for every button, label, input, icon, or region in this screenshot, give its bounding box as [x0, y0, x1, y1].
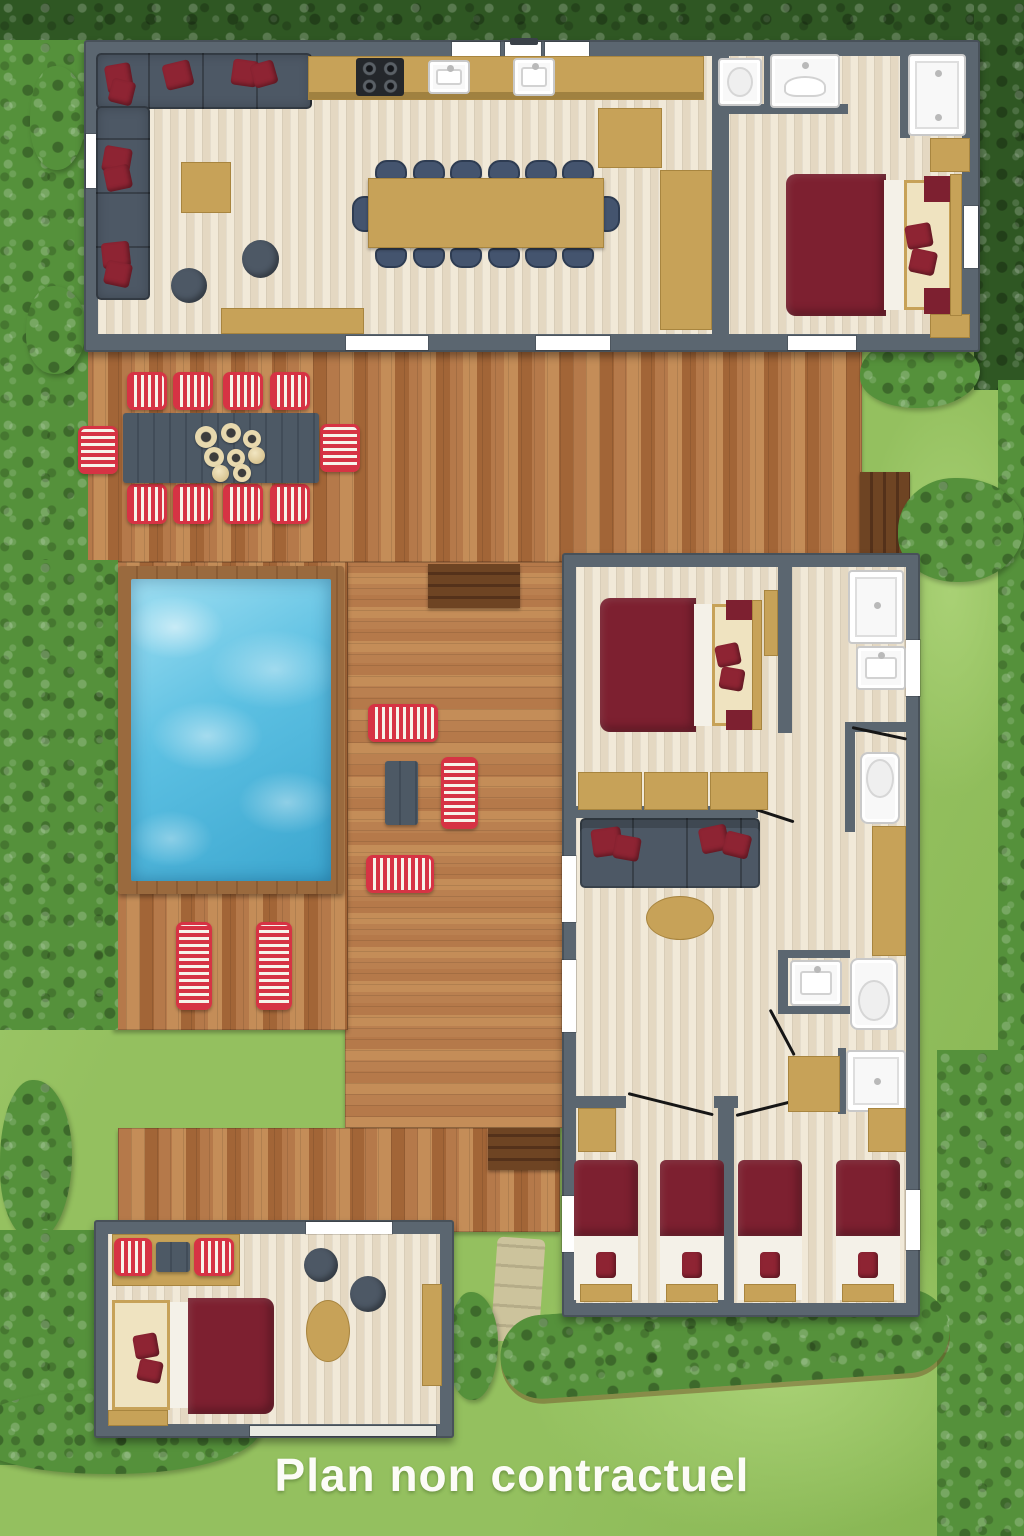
bed-bench — [108, 1410, 168, 1426]
single-bed-duvet — [836, 1160, 900, 1236]
outdoor-chair — [173, 372, 213, 410]
sink-basin — [865, 657, 896, 679]
dining-chair — [450, 160, 482, 180]
double-bed-sheet — [694, 604, 714, 726]
table-bowl — [212, 465, 229, 482]
lounge-bench — [441, 757, 478, 829]
dining-table — [368, 178, 604, 248]
kitchen-sink — [428, 60, 470, 94]
oval-rug — [646, 896, 714, 940]
wardrobe — [868, 1108, 906, 1152]
pouf — [242, 240, 279, 278]
outdoor-chair — [320, 424, 360, 472]
table-bowl — [221, 423, 241, 443]
hedge-right-mid — [998, 380, 1024, 1070]
partition — [778, 950, 850, 958]
outdoor-chair — [270, 372, 310, 410]
lounge-bench — [368, 704, 438, 742]
shower-drain — [874, 602, 881, 609]
shower-drain — [935, 114, 942, 121]
outdoor-chair — [270, 484, 310, 524]
kitchen-island — [598, 108, 662, 168]
table-bowl — [233, 464, 251, 482]
window — [906, 640, 920, 696]
dining-chair — [375, 160, 407, 180]
dining-chair — [562, 160, 594, 180]
headboard — [752, 600, 762, 730]
wardrobe — [872, 826, 906, 956]
bed-pillow — [904, 222, 934, 250]
lounge-bench — [366, 855, 434, 893]
partition — [714, 1096, 738, 1108]
table-bowl — [243, 430, 261, 448]
headboard — [950, 174, 962, 316]
bed-pillow — [858, 1252, 878, 1278]
partition — [576, 1096, 626, 1108]
partition — [778, 958, 788, 1008]
dining-chair — [562, 248, 594, 268]
pouf — [350, 1276, 386, 1312]
deck-steps — [428, 564, 520, 608]
sink-basin — [800, 971, 833, 995]
tall-cabinet — [660, 170, 712, 330]
toilet-seat — [866, 759, 893, 798]
oval-rug — [306, 1300, 350, 1362]
bathroom-cabinet — [788, 1056, 840, 1112]
dining-chair — [413, 248, 445, 268]
table-bowl — [195, 426, 217, 448]
wardrobe — [764, 590, 778, 656]
shower — [848, 570, 904, 644]
window — [545, 42, 589, 56]
double-bed-sheet — [170, 1302, 188, 1408]
outdoor-chair — [223, 372, 263, 410]
swimming-pool — [131, 579, 331, 881]
vanity-sink — [856, 646, 906, 690]
toilet-seat — [727, 67, 753, 97]
outdoor-chair — [223, 484, 263, 524]
wardrobe — [578, 1108, 616, 1152]
bed-pillow — [132, 1332, 160, 1360]
partition — [845, 732, 855, 832]
floor-plan-canvas: Plan non contractuel — [0, 0, 1024, 1536]
lounge-table — [385, 761, 418, 825]
shower — [846, 1050, 906, 1112]
bed-pillow — [596, 1252, 616, 1278]
bed-bench — [842, 1284, 894, 1302]
dining-chair — [488, 248, 520, 268]
single-bed-duvet — [738, 1160, 802, 1236]
lounge-deck — [345, 562, 563, 1128]
window — [562, 1196, 574, 1252]
window — [306, 1222, 392, 1234]
cabinet — [422, 1284, 442, 1386]
dining-chair — [525, 248, 557, 268]
window — [562, 960, 576, 1032]
sofa-pillow — [103, 260, 133, 289]
pouf — [304, 1248, 338, 1282]
shower — [908, 54, 966, 136]
bed-pillow — [908, 248, 938, 277]
deck-steps-lower — [488, 1128, 560, 1170]
toilet — [860, 752, 900, 824]
double-bed-sheet — [884, 180, 906, 310]
window — [346, 336, 428, 350]
table-bowl — [204, 447, 224, 467]
window — [452, 42, 500, 56]
armchair — [194, 1238, 234, 1276]
dining-chair — [375, 248, 407, 268]
hedge-right-upper — [974, 0, 1024, 390]
sink-basin — [784, 76, 826, 97]
window — [788, 336, 856, 350]
glazed-door — [250, 1426, 436, 1436]
bed-pillow — [682, 1252, 702, 1278]
bush-suite-right — [448, 1292, 498, 1400]
dresser — [644, 772, 708, 810]
shower-drain — [874, 1078, 881, 1085]
square-rug — [181, 162, 231, 213]
cooktop — [356, 58, 404, 96]
window — [964, 206, 978, 268]
bedroom-bench — [930, 138, 970, 172]
faucet — [447, 65, 454, 72]
kitchen-sink-2 — [513, 58, 555, 96]
dining-chair — [525, 160, 557, 180]
table-bowl — [248, 447, 265, 464]
outdoor-chair — [78, 426, 118, 474]
faucet — [814, 966, 821, 973]
single-bed-duvet — [574, 1160, 638, 1236]
outdoor-chair — [127, 484, 167, 524]
hedge-left-pool — [0, 560, 118, 1030]
dining-chair — [488, 160, 520, 180]
sofa-pillow — [612, 834, 642, 862]
bed-bench — [666, 1284, 718, 1302]
plan-caption: Plan non contractuel — [0, 1448, 1024, 1502]
sideboard — [221, 308, 364, 334]
bed-bench — [580, 1284, 632, 1302]
dresser — [578, 772, 642, 810]
partition — [778, 1006, 850, 1014]
side-table — [156, 1242, 190, 1272]
faucet — [802, 62, 809, 69]
sun-lounger — [256, 922, 292, 1010]
window — [536, 336, 610, 350]
window — [562, 856, 576, 922]
double-bed-duvet — [188, 1298, 274, 1414]
double-bed-duvet — [600, 598, 696, 732]
bush-left-low — [0, 1080, 72, 1240]
vanity-sink — [790, 960, 842, 1006]
bed-pillow — [760, 1252, 780, 1278]
window — [906, 1190, 920, 1250]
single-bed-duvet — [660, 1160, 724, 1236]
faucet — [532, 63, 539, 70]
toilet-seat — [858, 980, 890, 1021]
outdoor-chair — [173, 484, 213, 524]
faucet — [878, 652, 885, 659]
shower-drain — [935, 70, 942, 77]
bedroom-bench — [930, 314, 970, 338]
dining-chair — [450, 248, 482, 268]
toilet — [718, 58, 762, 106]
dining-chair — [413, 160, 445, 180]
pouf — [171, 268, 207, 303]
vanity-sink — [770, 54, 840, 108]
double-bed-duvet — [786, 174, 886, 316]
sink-basin — [521, 67, 547, 86]
sun-lounger — [176, 922, 212, 1010]
dresser — [710, 772, 768, 810]
toilet — [850, 958, 898, 1030]
bed-pillow — [136, 1358, 164, 1385]
window-fitting — [510, 38, 538, 45]
outdoor-chair — [127, 372, 167, 410]
partition — [778, 567, 792, 733]
bed-pillow — [718, 666, 745, 692]
armchair — [114, 1238, 152, 1276]
bed-bench — [744, 1284, 796, 1302]
